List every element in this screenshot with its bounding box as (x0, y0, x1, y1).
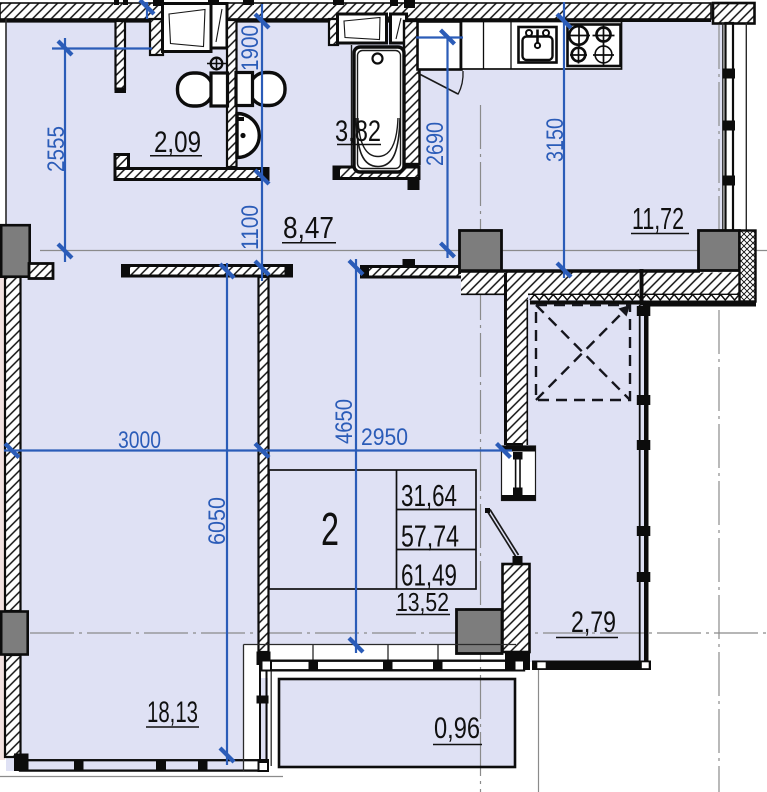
svg-text:0,96: 0,96 (434, 712, 480, 745)
svg-text:2,79: 2,79 (571, 606, 616, 639)
svg-text:2,09: 2,09 (154, 126, 201, 159)
svg-text:6050: 6050 (204, 497, 231, 545)
svg-text:18,13: 18,13 (147, 696, 198, 729)
svg-text:31,64: 31,64 (401, 478, 457, 513)
svg-text:1900: 1900 (237, 25, 264, 71)
svg-text:57,74: 57,74 (401, 519, 459, 554)
svg-text:2: 2 (321, 503, 339, 555)
svg-text:3000: 3000 (118, 427, 161, 454)
svg-text:2950: 2950 (361, 424, 408, 451)
svg-text:11,72: 11,72 (632, 201, 684, 236)
svg-text:2555: 2555 (43, 126, 70, 172)
svg-text:61,49: 61,49 (401, 558, 457, 593)
svg-text:3150: 3150 (542, 118, 569, 162)
svg-text:2690: 2690 (422, 122, 449, 166)
svg-text:3,82: 3,82 (335, 115, 381, 148)
svg-text:4650: 4650 (331, 399, 358, 444)
svg-text:8,47: 8,47 (283, 210, 334, 245)
svg-text:1100: 1100 (237, 205, 264, 250)
